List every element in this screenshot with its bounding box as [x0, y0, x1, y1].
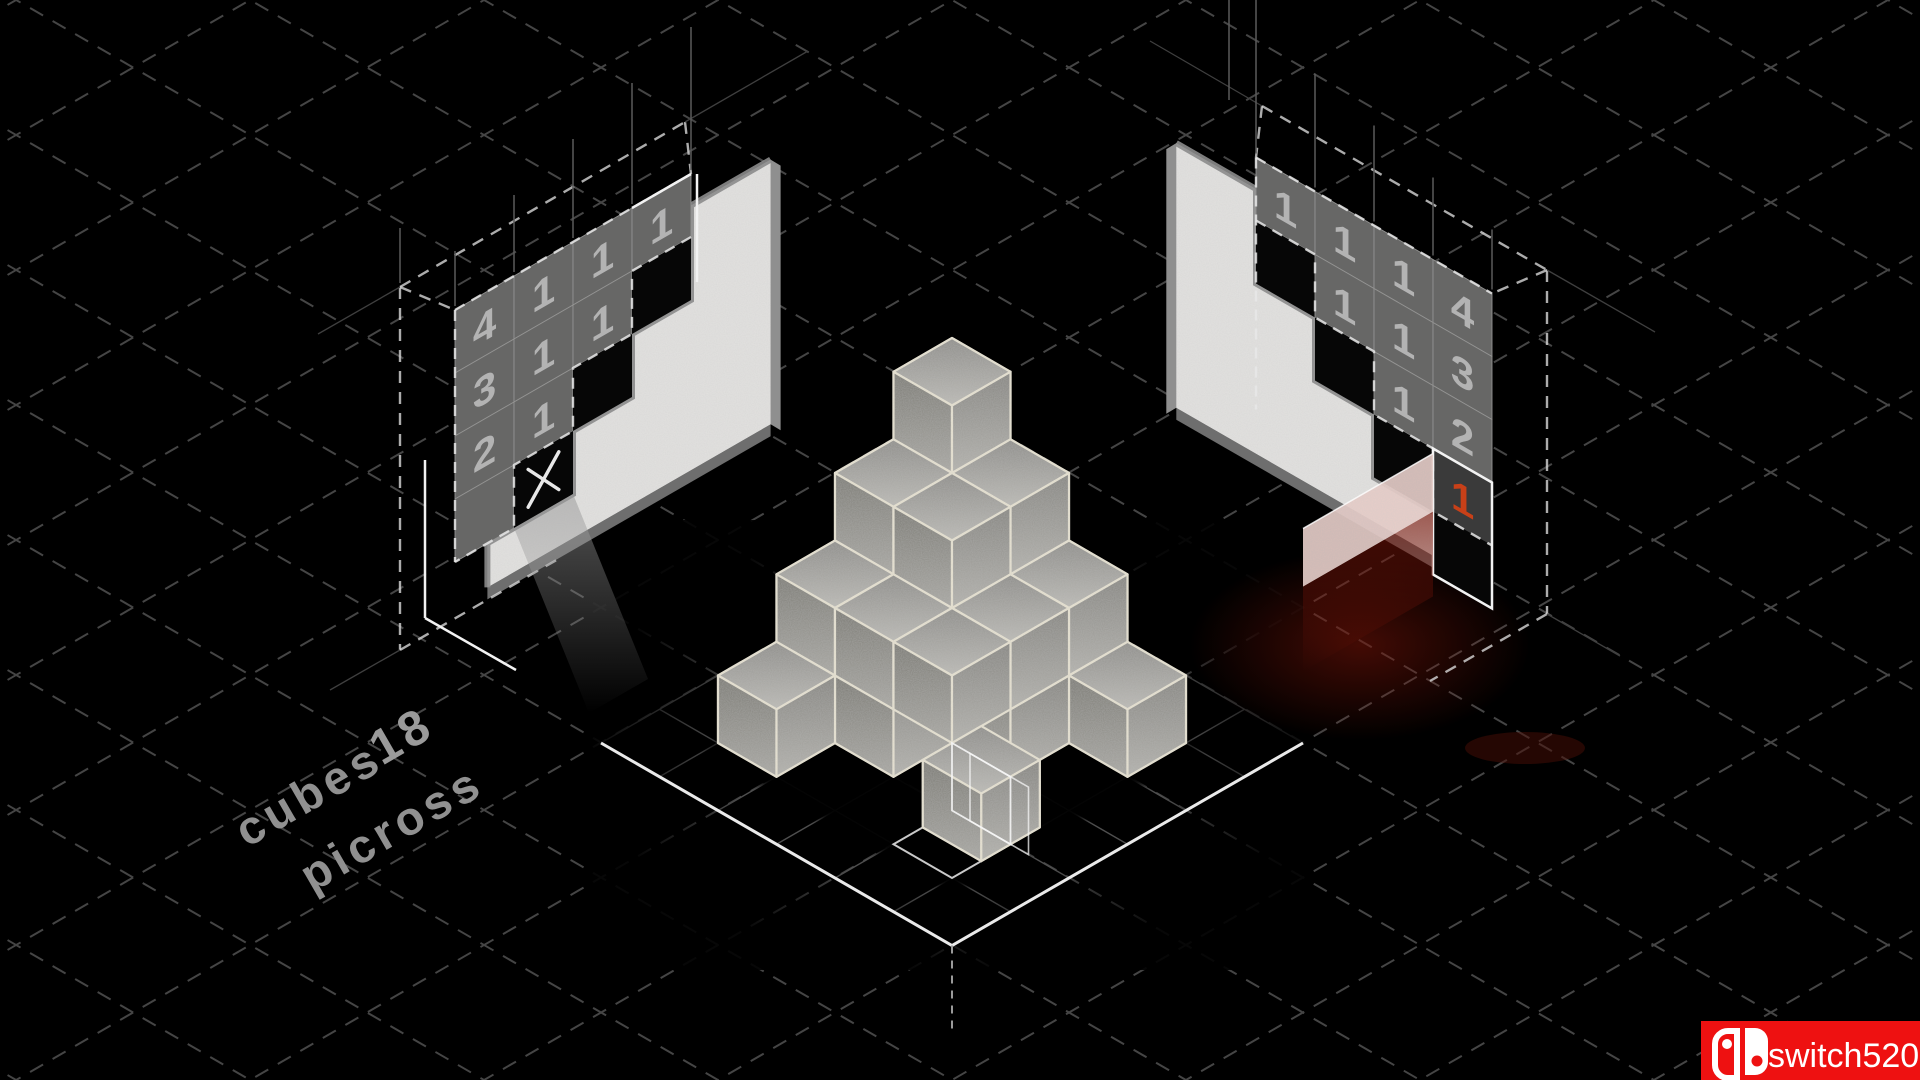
game-scene: 411131121 1114113121 cubes 18 picross sw… — [0, 0, 1920, 1080]
watermark-text: switch520 — [1768, 1037, 1919, 1075]
game-screen: 411131121 1114113121 cubes 18 picross sw… — [0, 0, 1920, 1080]
watermark-badge: switch520 — [1701, 1021, 1920, 1080]
